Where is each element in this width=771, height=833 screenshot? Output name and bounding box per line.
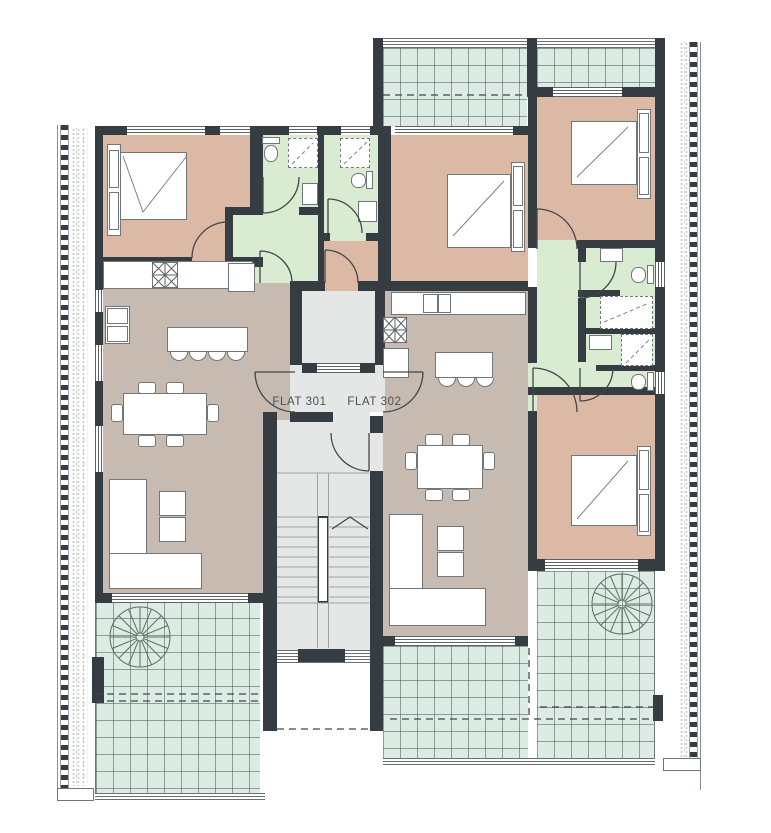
wall [317, 126, 341, 135]
toilet-tank [366, 171, 373, 189]
boundary-hatch-right [689, 42, 698, 766]
wall [638, 559, 665, 571]
sofa [109, 553, 202, 589]
wall [655, 38, 665, 243]
wall [299, 207, 324, 215]
door-opening [578, 362, 586, 387]
side-table [437, 552, 464, 577]
wall [655, 394, 665, 565]
wall [378, 126, 391, 281]
window [95, 426, 103, 472]
sofa [389, 588, 486, 626]
boundary-hatch-left [60, 125, 69, 788]
wall [528, 93, 537, 248]
side-table [437, 526, 464, 551]
wall [528, 559, 545, 571]
sink-basin [107, 326, 128, 342]
wall [290, 281, 302, 365]
boundary-line-right [700, 42, 701, 790]
pillow [513, 210, 523, 248]
fridge [228, 263, 255, 292]
floor-plan: FLAT 301 FLAT 302 [0, 0, 771, 833]
pillow [639, 494, 649, 532]
pillow [639, 450, 649, 490]
chair [138, 435, 156, 447]
shower [288, 138, 318, 168]
door-opening [370, 433, 383, 471]
window [655, 262, 665, 287]
pillow [109, 192, 119, 230]
toilet [631, 374, 646, 390]
wall [655, 243, 665, 262]
chair [405, 452, 417, 470]
kitchen-island [435, 352, 493, 378]
shower [340, 138, 370, 168]
wall [373, 38, 383, 135]
chair [207, 404, 219, 422]
wall [92, 657, 104, 703]
door-opening [325, 281, 358, 291]
sink-basin [423, 294, 438, 313]
wall [360, 363, 375, 373]
sofa [109, 479, 147, 557]
flat302-label: FLAT 302 [337, 396, 412, 408]
wall [515, 636, 528, 646]
toilet [351, 173, 366, 188]
shower [621, 334, 653, 366]
bed [571, 455, 637, 526]
terrace-railing [383, 758, 655, 766]
flat301-label: FLAT 301 [262, 396, 337, 408]
boundary-line-left [57, 125, 58, 788]
wall [95, 472, 103, 593]
door-opening [330, 233, 366, 241]
corridor-flat302 [324, 241, 378, 281]
toilet-tank [647, 265, 654, 284]
wall [95, 312, 103, 345]
window [289, 126, 317, 135]
wall [370, 416, 383, 433]
window [395, 126, 513, 135]
window [655, 372, 665, 394]
wall [655, 287, 665, 372]
bed [571, 121, 637, 185]
window [95, 290, 103, 312]
dining-table [417, 445, 483, 489]
wall [205, 126, 220, 135]
chair [166, 435, 184, 447]
sink-basin [107, 308, 128, 324]
wall [302, 363, 317, 373]
window [220, 126, 250, 135]
wall [528, 287, 537, 363]
bed [120, 152, 187, 220]
wall [263, 412, 277, 731]
chair [483, 452, 495, 470]
door-opening [263, 207, 299, 215]
wall [622, 87, 665, 97]
wall [248, 593, 276, 603]
chair [452, 489, 470, 501]
window [545, 559, 638, 571]
terrace-railing [383, 38, 527, 48]
washbasin [589, 335, 612, 350]
wall [653, 695, 663, 721]
dining-table [123, 393, 207, 435]
toilet-tank [262, 137, 280, 144]
window [341, 126, 370, 135]
washbasin [600, 248, 623, 262]
boundary-endbox-right [663, 758, 701, 771]
chair [425, 489, 443, 501]
terrace-railing [537, 38, 658, 48]
sofa [389, 514, 423, 590]
wall [528, 411, 537, 567]
chair [111, 404, 123, 422]
boundary-stipple-right [679, 42, 689, 766]
terrace-top-left [383, 48, 527, 126]
bed [447, 174, 511, 248]
pillow [109, 150, 119, 188]
glazed-partition [317, 363, 360, 373]
toilet [264, 145, 278, 162]
terrace-railing [95, 793, 265, 801]
entrance-lobby [297, 289, 375, 412]
wall [577, 240, 665, 248]
wall [225, 207, 263, 215]
hallway-flat302 [537, 248, 578, 387]
wall [297, 412, 333, 422]
terrace-top-right [537, 48, 655, 87]
wall [95, 381, 103, 426]
washbasin [302, 183, 318, 205]
oven [383, 348, 409, 378]
wall [383, 636, 395, 646]
boundary-endbox-left [57, 788, 94, 801]
kitchen-island [167, 327, 248, 352]
side-table [159, 517, 186, 542]
stair-divider [317, 516, 329, 603]
boundary-stipple-left [71, 128, 88, 786]
bathtub [600, 296, 653, 329]
terrace-bottom-right [383, 646, 528, 758]
window [395, 636, 515, 646]
window [112, 593, 248, 603]
pillow [639, 113, 649, 153]
hob [383, 317, 407, 343]
window [553, 87, 622, 97]
wall [578, 248, 586, 262]
pillow [639, 157, 649, 195]
washbasin [358, 201, 377, 222]
door-opening [537, 240, 577, 248]
pillow [513, 166, 523, 206]
wall [95, 593, 112, 603]
terrace-bottom-right-wing [537, 571, 655, 758]
toilet [631, 267, 646, 283]
entrance-mat [298, 649, 345, 662]
wall [370, 471, 383, 731]
kitchen-counter [391, 292, 526, 315]
hob [152, 262, 178, 288]
wall [324, 233, 330, 241]
toilet-tank [647, 372, 654, 391]
window [95, 345, 103, 381]
sink-basin [438, 294, 451, 313]
terrace-bottom-left [95, 601, 260, 793]
window [127, 126, 205, 135]
side-table [159, 491, 186, 516]
